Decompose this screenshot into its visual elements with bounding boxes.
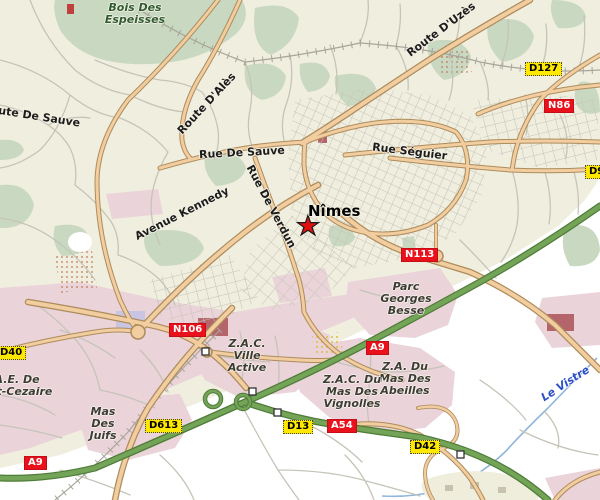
map-canvas[interactable]: Route De Sauve Rue De Sauve Rue Séguier … <box>0 0 600 500</box>
route-shield-a9-west: A9 <box>24 456 47 470</box>
route-shield-d40: D40 <box>0 346 26 360</box>
route-shield-d613: D613 <box>145 419 182 433</box>
route-shield-a54: A54 <box>327 419 357 433</box>
route-shield-d42: D42 <box>410 440 440 454</box>
route-shield-a9-east: A9 <box>366 341 389 355</box>
route-shield-n86: N86 <box>544 99 574 113</box>
route-shield-d13: D13 <box>283 420 313 434</box>
route-shield-n106: N106 <box>169 323 206 337</box>
route-shield-n113: N113 <box>401 248 438 262</box>
route-shield-d9: D9 <box>585 165 600 179</box>
route-shield-d127: D127 <box>525 62 562 76</box>
